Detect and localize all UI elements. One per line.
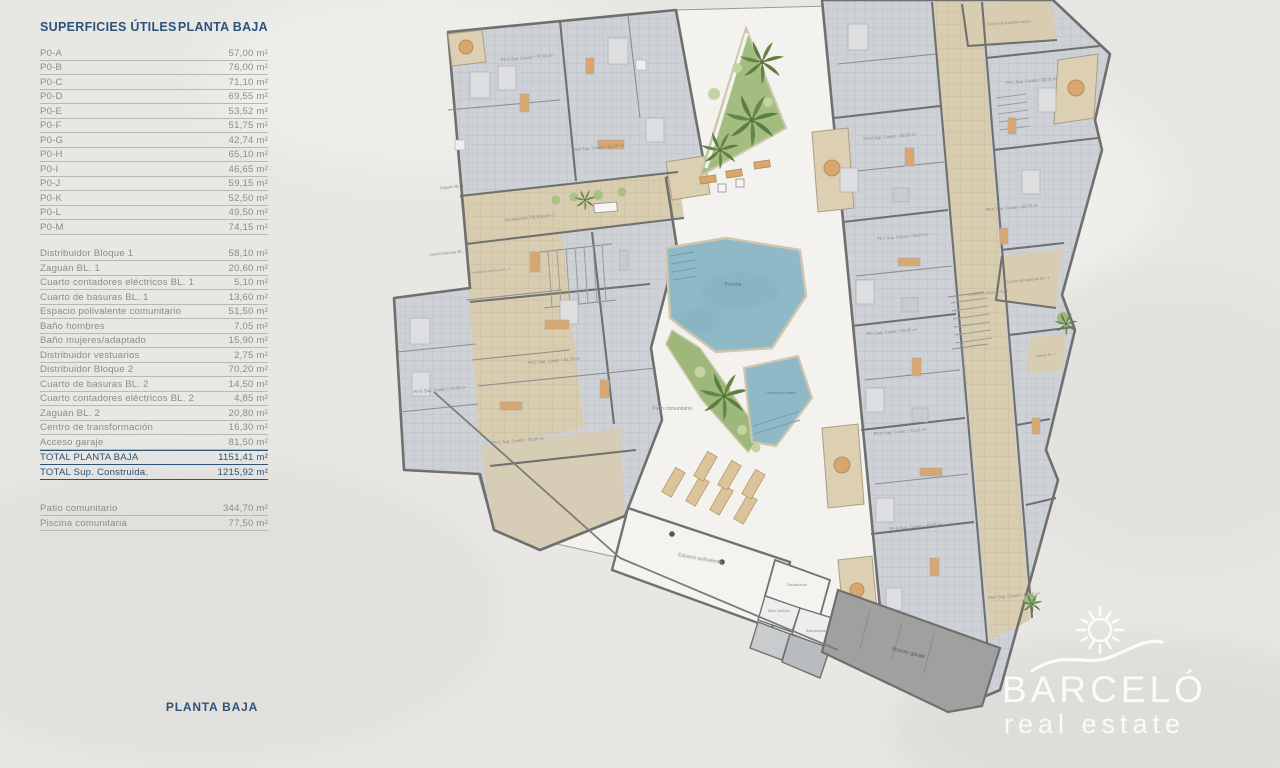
table-row: P0-B 76,00 m² (40, 61, 268, 76)
row-label: P0-D (40, 91, 63, 102)
row-value: 76,00 m² (229, 62, 268, 73)
table-row: P0-F 51,75 m² (40, 119, 268, 134)
table-row: Cuarto contadores eléctricos BL. 1 5,10 … (40, 276, 268, 291)
row-label: P0-G (40, 135, 63, 146)
row-value: 49,50 m² (229, 207, 268, 218)
plan-label: Baño adaptado (806, 629, 829, 633)
row-value: 15,90 m² (229, 335, 268, 346)
row-value: 5,10 m² (234, 277, 268, 288)
table-header: SUPERFICIES ÚTILES PLANTA BAJA (40, 20, 268, 34)
surface-table: SUPERFICIES ÚTILES PLANTA BAJA P0-A 57,0… (40, 20, 268, 531)
row-value: 42,74 m² (229, 135, 268, 146)
row-label: Baño mujeres/adaptado (40, 335, 146, 346)
row-label: P0-L (40, 207, 61, 218)
row-value: 65,10 m² (229, 149, 268, 160)
row-value: 59,15 m² (229, 178, 268, 189)
row-label: Espacio polivalente comunitario (40, 306, 181, 317)
table-row: Espacio polivalente comunitario 51,50 m² (40, 305, 268, 320)
community-group: Patio comunitario 344,70 m² Piscina comu… (40, 502, 268, 531)
table-row: P0-D 69,55 m² (40, 90, 268, 105)
row-value: 1151,41 m² (218, 452, 268, 463)
row-value: 46,65 m² (229, 164, 268, 175)
row-label: Distribuidor Bloque 2 (40, 364, 133, 375)
totals-group: TOTAL PLANTA BAJA 1151,41 m² TOTAL Sup. … (40, 450, 268, 480)
table-row: Cuarto de basuras BL. 1 13,60 m² (40, 290, 268, 305)
row-value: 71,10 m² (229, 77, 268, 88)
row-value: 69,55 m² (229, 91, 268, 102)
row-value: 2,75 m² (234, 350, 268, 361)
table-row: P0-J 59,15 m² (40, 177, 268, 192)
row-value: 1215,92 m² (217, 467, 268, 478)
table-row: Distribuidor Bloque 2 70,20 m² (40, 363, 268, 378)
brand-tagline: real estate (1004, 709, 1185, 739)
table-row: P0-A 57,00 m² (40, 46, 268, 61)
table-row: Cuarto contadores eléctricos BL. 2 4,85 … (40, 392, 268, 407)
row-label: Zaguán BL. 1 (40, 263, 100, 274)
commons-group: Distribuidor Bloque 1 58,10 m² Zaguán BL… (40, 247, 268, 450)
row-value: 7,05 m² (234, 321, 268, 332)
row-label: P0-E (40, 106, 62, 117)
table-row: Piscina comunitaria 77,50 m² (40, 516, 268, 531)
row-label: P0-K (40, 193, 62, 204)
table-header-col2: PLANTA BAJA (178, 20, 268, 34)
row-value: 20,60 m² (229, 263, 268, 274)
row-label: Piscina comunitaria (40, 518, 127, 529)
row-value: 13,60 m² (229, 292, 268, 303)
row-label: Baño hombres (40, 321, 105, 332)
row-value: 14,50 m² (229, 379, 268, 390)
plan-label: Baño hombres (768, 609, 790, 613)
table-row: P0-I 46,65 m² (40, 162, 268, 177)
row-label: P0-C (40, 77, 63, 88)
brand-name: BARCELÓ (1002, 669, 1207, 710)
row-value: 16,30 m² (229, 422, 268, 433)
row-value: 51,50 m² (229, 306, 268, 317)
row-label: P0-B (40, 62, 62, 73)
row-label: Acceso garaje (40, 437, 103, 448)
row-label: Cuarto contadores eléctricos BL. 2 (40, 393, 194, 404)
row-label: Cuarto contadores eléctricos BL. 1 (40, 277, 194, 288)
row-label: TOTAL PLANTA BAJA (40, 452, 138, 463)
row-label: P0-F (40, 120, 62, 131)
table-row: Zaguán BL. 2 20,80 m² (40, 406, 268, 421)
row-label: Cuarto de basuras BL. 2 (40, 379, 149, 390)
row-value: 81,50 m² (229, 437, 268, 448)
table-row: Baño mujeres/adaptado 15,90 m² (40, 334, 268, 349)
row-label: P0-A (40, 48, 62, 59)
table-row: Distribuidor vestuarios 2,75 m² (40, 348, 268, 363)
plan-label: Piscina zona infantil (766, 391, 795, 395)
table-row: Zaguán BL. 1 20,60 m² (40, 261, 268, 276)
row-value: 58,10 m² (229, 248, 268, 259)
table-row: Cuarto de basuras BL. 2 14,50 m² (40, 377, 268, 392)
row-label: Cuarto de basuras BL. 1 (40, 292, 149, 303)
table-row: P0-M 74,15 m² (40, 220, 268, 235)
plan-label: Patio comunitario (652, 406, 692, 412)
table-row: Distribuidor Bloque 1 58,10 m² (40, 247, 268, 262)
row-value: 52,50 m² (229, 193, 268, 204)
row-label: Distribuidor Bloque 1 (40, 248, 133, 259)
row-label: P0-I (40, 164, 58, 175)
row-value: 51,75 m² (229, 120, 268, 131)
table-row: Patio comunitario 344,70 m² (40, 502, 268, 517)
table-row: P0-L 49,50 m² (40, 206, 268, 221)
row-value: 74,15 m² (229, 222, 268, 233)
row-label: P0-J (40, 178, 61, 189)
table-total-row: TOTAL PLANTA BAJA 1151,41 m² (40, 450, 268, 466)
table-row: P0-H 65,10 m² (40, 148, 268, 163)
row-label: Zaguán BL. 2 (40, 408, 100, 419)
row-label: Centro de transformación (40, 422, 153, 433)
table-header-col1: SUPERFICIES ÚTILES (40, 20, 177, 34)
units-group: P0-A 57,00 m² P0-B 76,00 m² P0-C 71,10 m… (40, 46, 268, 235)
row-label: P0-M (40, 222, 64, 233)
row-label: P0-H (40, 149, 63, 160)
row-value: 344,70 m² (223, 503, 268, 514)
table-row: P0-E 53,52 m² (40, 104, 268, 119)
table-row: Centro de transformación 16,30 m² (40, 421, 268, 436)
floor-caption: PLANTA BAJA (152, 700, 272, 714)
table-row: P0-K 52,50 m² (40, 191, 268, 206)
table-row: P0-C 71,10 m² (40, 75, 268, 90)
table-row: P0-G 42,74 m² (40, 133, 268, 148)
row-value: 53,52 m² (229, 106, 268, 117)
table-row: Acceso garaje 81,50 m² (40, 435, 268, 450)
row-value: 57,00 m² (229, 48, 268, 59)
plan-label: Piscina (725, 282, 742, 288)
row-value: 20,80 m² (229, 408, 268, 419)
floorplan-page: Piscina Piscina zona infantil Patio comu… (0, 0, 1280, 768)
row-label: Patio comunitario (40, 503, 118, 514)
plan-label: Distribuidor (787, 582, 808, 587)
row-value: 70,20 m² (229, 364, 268, 375)
row-value: 4,85 m² (234, 393, 268, 404)
table-total-row: TOTAL Sup. Construida. 1215,92 m² (40, 465, 268, 480)
row-label: TOTAL Sup. Construida. (40, 467, 148, 478)
row-value: 77,50 m² (229, 518, 268, 529)
row-label: Distribuidor vestuarios (40, 350, 140, 361)
table-row: Baño hombres 7,05 m² (40, 319, 268, 334)
